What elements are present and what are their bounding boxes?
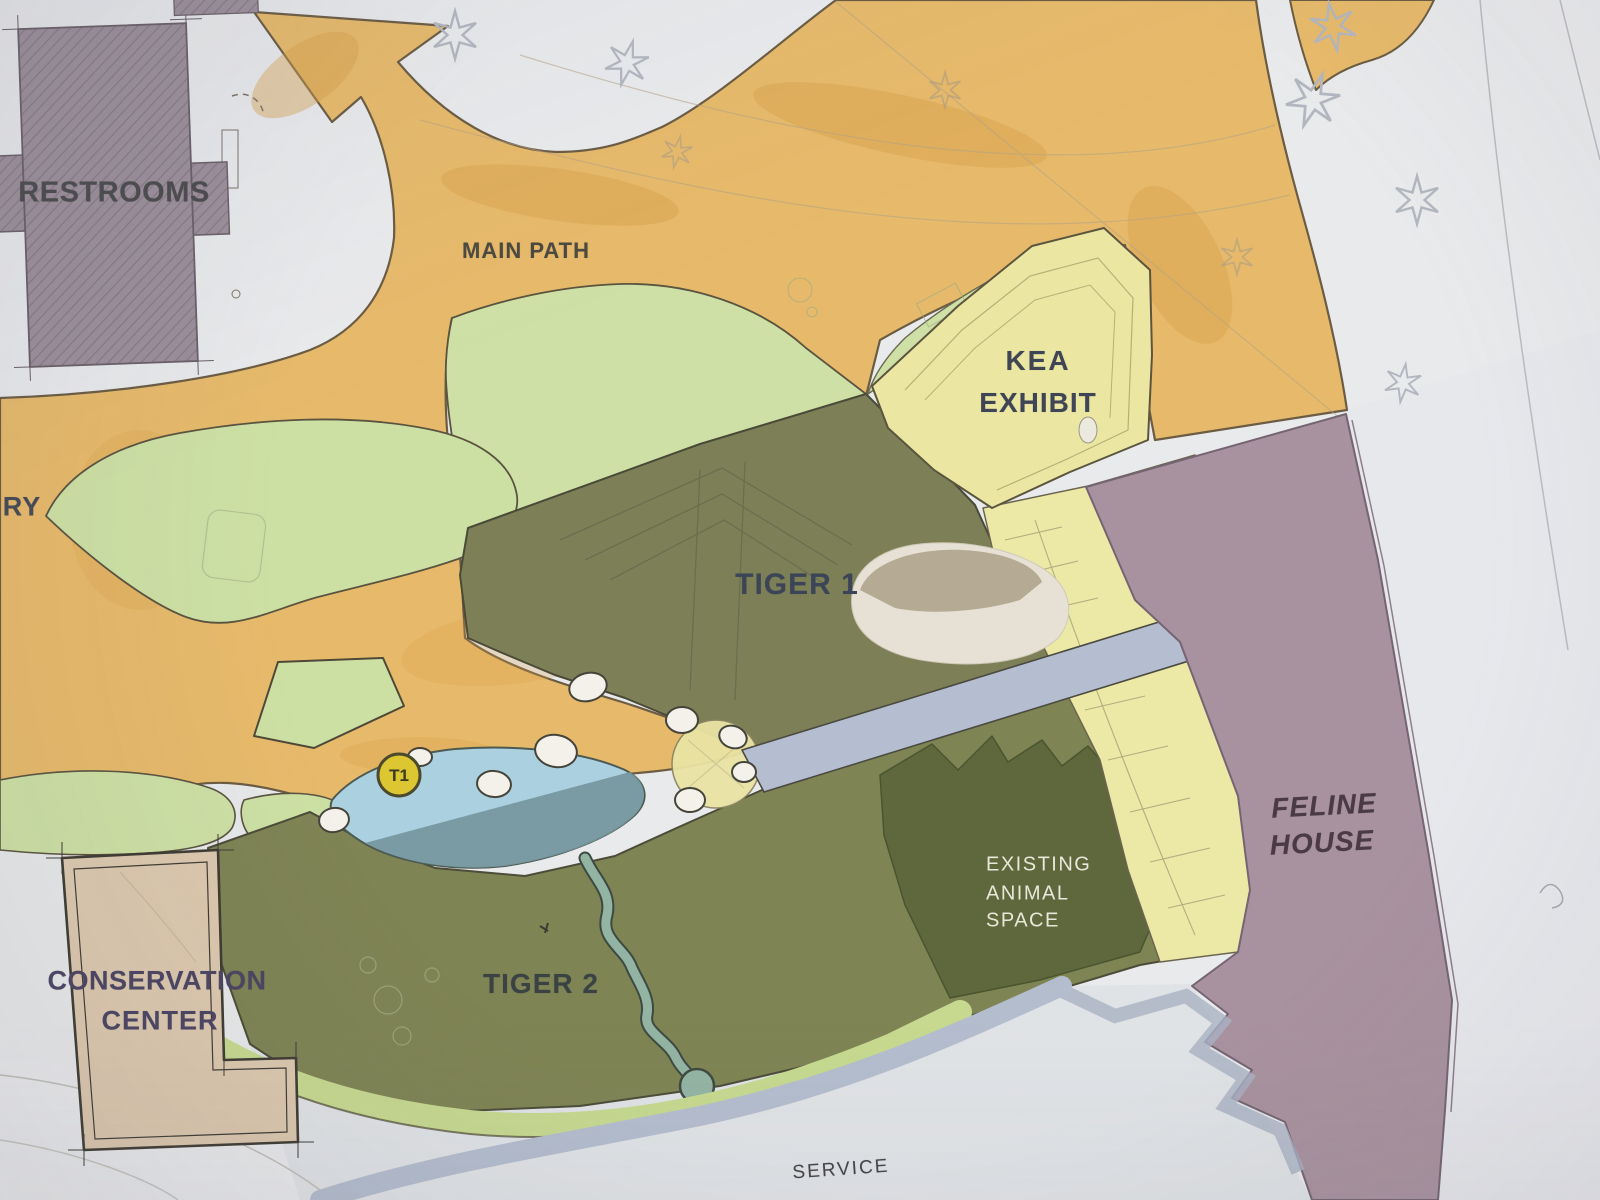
t1-marker-label: T1 (389, 766, 409, 786)
label-existing-line2: ANIMAL (986, 883, 1069, 906)
label-tiger2: TIGER 2 (483, 968, 599, 1000)
label-feline-line2: HOUSE (1269, 824, 1375, 861)
label-main-path: MAIN PATH (462, 238, 590, 264)
building-edge-top (174, 0, 259, 15)
label-conservation-line2: CENTER (101, 1006, 218, 1037)
label-existing-line1: EXISTING (986, 854, 1091, 877)
label-kea-line1: KEA (1005, 345, 1070, 377)
label-existing-line3: SPACE (986, 910, 1060, 933)
label-aviary-partial: RY (3, 492, 42, 523)
label-feline-line1: FELINE (1270, 787, 1377, 824)
zoo-site-plan: RESTROOMS MAIN PATH KEA EXHIBIT TIGER 1 … (0, 0, 1600, 1200)
label-tiger1: TIGER 1 (735, 568, 859, 602)
label-restrooms: RESTROOMS (18, 177, 209, 210)
label-conservation-line1: CONSERVATION (47, 966, 266, 997)
label-kea-line2: EXHIBIT (979, 387, 1096, 419)
